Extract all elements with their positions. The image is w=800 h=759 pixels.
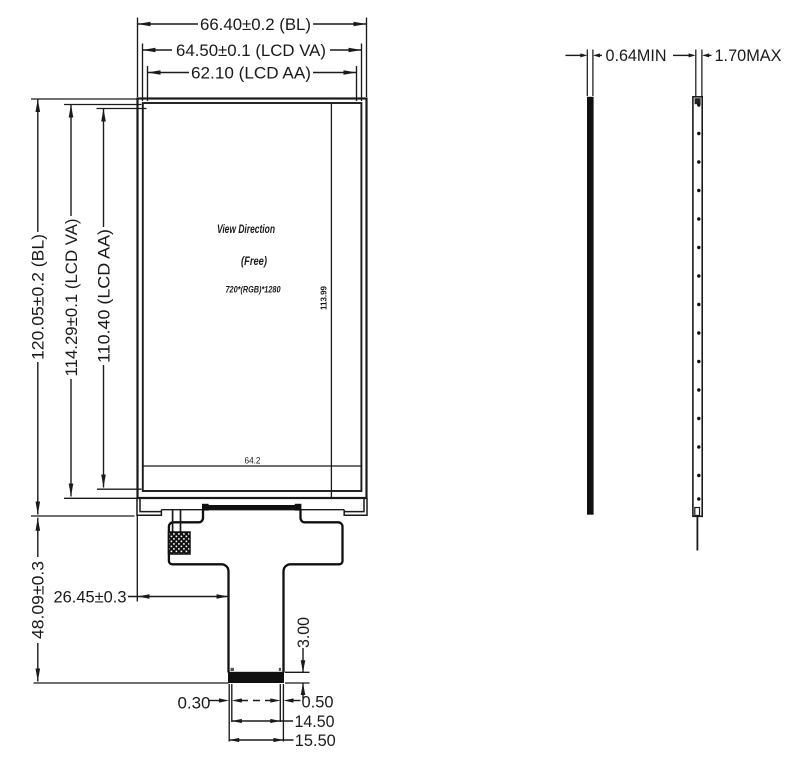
svg-text:114.29±0.1 (LCD VA): 114.29±0.1 (LCD VA): [63, 219, 81, 377]
svg-text:48.09±0.3: 48.09±0.3: [30, 561, 48, 639]
svg-text:14.50: 14.50: [295, 713, 335, 731]
svg-text:66.40±0.2 (BL): 66.40±0.2 (BL): [200, 16, 311, 34]
svg-text:15.50: 15.50: [295, 732, 336, 750]
svg-text:(Free): (Free): [241, 256, 267, 268]
svg-text:120.05±0.2 (BL): 120.05±0.2 (BL): [30, 234, 48, 360]
svg-text:26.45±0.3: 26.45±0.3: [54, 588, 127, 606]
svg-text:113.99: 113.99: [319, 286, 329, 310]
svg-text:110.40 (LCD AA): 110.40 (LCD AA): [95, 229, 113, 363]
svg-text:64.2: 64.2: [245, 456, 261, 466]
svg-text:3.00: 3.00: [295, 617, 313, 648]
svg-text:0.30: 0.30: [178, 695, 211, 713]
svg-text:720*(RGB)*1280: 720*(RGB)*1280: [226, 285, 282, 296]
svg-text:62.10 (LCD AA): 62.10 (LCD AA): [191, 64, 311, 82]
svg-text:1.70MAX: 1.70MAX: [715, 47, 782, 65]
svg-text:64.50±0.1 (LCD VA): 64.50±0.1 (LCD VA): [176, 42, 326, 60]
svg-text:0.50: 0.50: [302, 693, 334, 711]
svg-text:View Direction: View Direction: [217, 224, 275, 236]
svg-text:0.64MIN: 0.64MIN: [606, 47, 667, 65]
